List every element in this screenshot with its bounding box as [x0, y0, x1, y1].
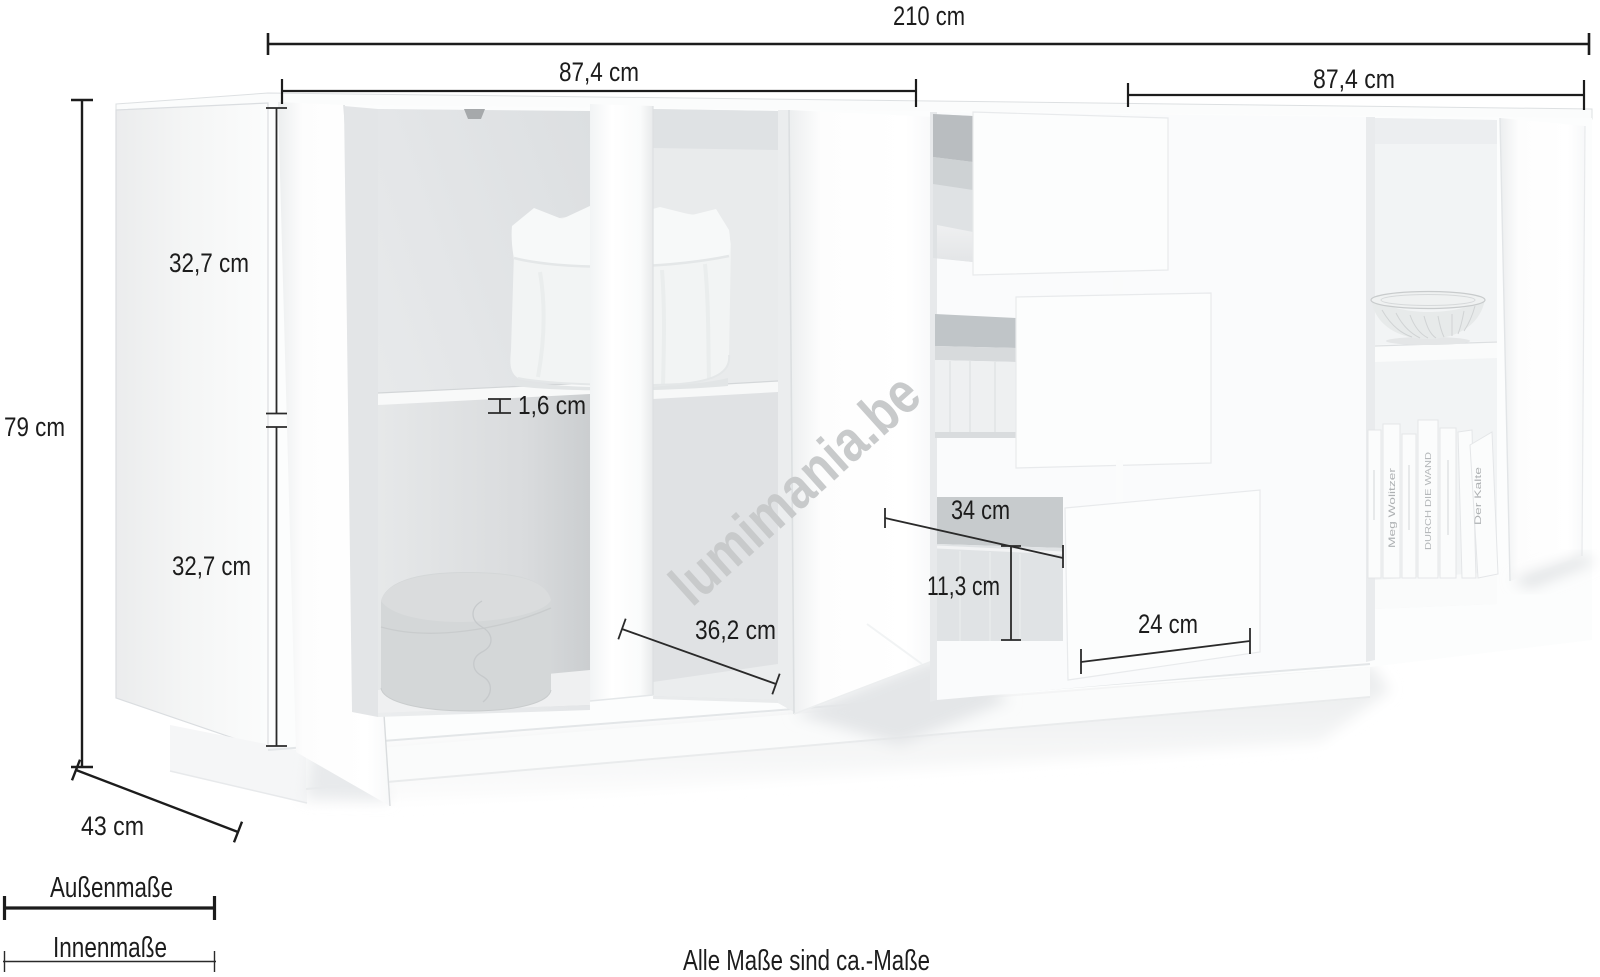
svg-text:DURCH DIE WAND: DURCH DIE WAND: [1423, 452, 1433, 550]
svg-text:Innenmaße: Innenmaße: [53, 932, 167, 964]
svg-text:32,7 cm: 32,7 cm: [172, 551, 251, 581]
svg-text:79 cm: 79 cm: [4, 412, 65, 442]
svg-text:43 cm: 43 cm: [81, 811, 144, 841]
svg-text:11,3 cm: 11,3 cm: [927, 571, 1000, 601]
svg-text:210 cm: 210 cm: [893, 1, 965, 31]
svg-text:36,2 cm: 36,2 cm: [695, 615, 776, 645]
svg-text:34 cm: 34 cm: [951, 495, 1010, 525]
svg-text:24 cm: 24 cm: [1138, 609, 1198, 639]
svg-text:Außenmaße: Außenmaße: [50, 872, 173, 904]
svg-text:87,4 cm: 87,4 cm: [559, 57, 639, 87]
svg-text:Meg Wolitzer: Meg Wolitzer: [1387, 468, 1397, 548]
svg-text:1,6 cm: 1,6 cm: [518, 390, 586, 420]
svg-text:Der Kalte: Der Kalte: [1473, 467, 1484, 525]
svg-text:87,4 cm: 87,4 cm: [1313, 64, 1395, 94]
svg-text:32,7 cm: 32,7 cm: [169, 248, 249, 278]
svg-text:Alle Maße sind ca.-Maße: Alle Maße sind ca.-Maße: [683, 945, 930, 977]
